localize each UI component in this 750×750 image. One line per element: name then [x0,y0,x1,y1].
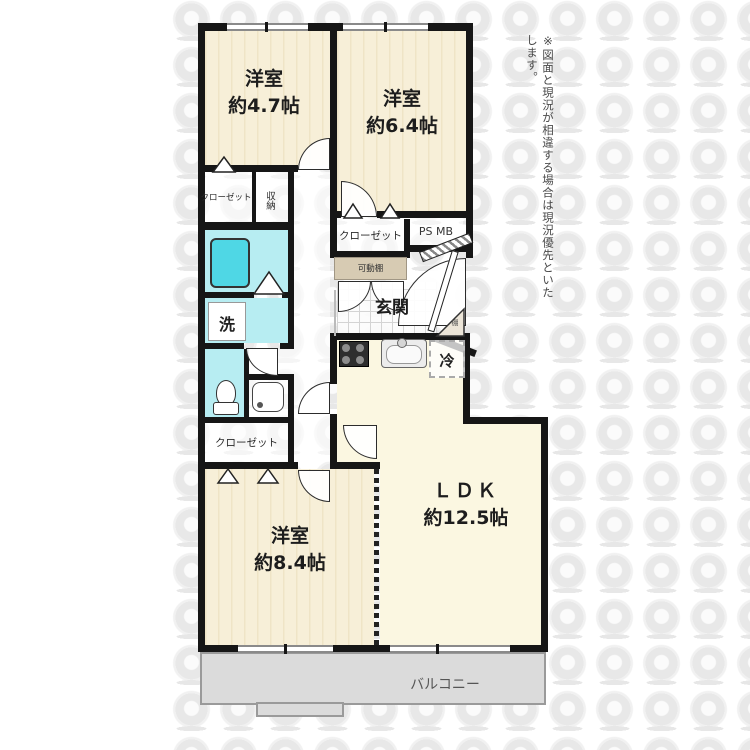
ldk-name: ＬＤＫ [385,478,547,505]
washbasin-drain-icon [257,402,263,408]
balcony-label: バルコニー [390,674,500,694]
wall-segment [330,340,337,384]
window-tick [284,644,287,654]
wall-segment [466,23,473,258]
bathtub-icon [210,238,250,288]
ldk-size: 約12.5帖 [385,505,547,532]
entrance-label: 玄関 [352,293,432,318]
wall-segment [330,462,380,469]
closet-center-label: クローゼット [337,228,404,243]
wall-segment [330,23,337,172]
stove-burner-icon [342,356,350,364]
bedroom-84-size: 約8.4帖 [205,550,375,577]
wall-segment [288,172,294,349]
wall-segment [510,645,548,652]
bath-door-mark [254,272,284,294]
entrance-shelf-label: 棚 [448,318,462,328]
bedroom-84-label: 洋室 約8.4帖 [205,523,375,576]
wall-segment [288,380,294,469]
wall-segment [198,645,238,652]
wall-segment [280,343,294,349]
bedroom-64-name: 洋室 [337,86,467,113]
entrance-step-line [334,290,336,336]
ldk-label: ＬＤＫ 約12.5帖 [385,478,547,531]
stove-burner-icon [356,356,364,364]
stove-burner-icon [356,344,364,352]
wall-segment [198,292,254,298]
wall-segment [198,222,294,230]
wall-segment [198,343,244,349]
wall-segment [330,414,337,469]
refrigerator-label: 冷 [429,350,465,371]
bedroom-64-label: 洋室 約6.4帖 [337,86,467,139]
closet-lower-label: クローゼット [205,435,288,450]
ps-mb-label: PS MB [408,225,464,238]
wall-segment [330,172,337,258]
bedroom-64-size: 約6.4帖 [337,113,467,140]
movable-shelf-label: 可動棚 [334,262,407,274]
washbasin-icon [252,382,284,412]
bedroom-47-name: 洋室 [198,66,330,93]
wall-segment [198,417,294,423]
window-tick [265,22,268,32]
disclaimer-text: ※図面と現況が相違する場合は現況優先といたします。 [524,34,556,304]
closet-door-mark [258,469,278,483]
closet-door-mark [381,204,399,218]
corridor-floor [294,172,330,462]
floor-plan: バルコニー [0,0,750,750]
window [390,645,510,653]
washing-machine-label: 洗 [208,311,246,335]
closet-upper-left-label: クローゼット [198,191,254,203]
bedroom-84-name: 洋室 [205,523,375,550]
window-tick [384,22,387,32]
toilet-tank-icon [213,402,239,415]
wall-segment [463,417,548,424]
closet-door-mark [213,157,235,172]
closet-door-mark [218,469,238,483]
wall-segment [333,645,390,652]
wall-segment [198,462,298,469]
ldk-floor [380,424,541,645]
balcony-step [256,702,344,717]
bedroom-47-label: 洋室 約4.7帖 [198,66,330,119]
wall-segment [541,417,548,652]
storage-label: 収納 [262,180,276,220]
stove-burner-icon [342,344,350,352]
kitchen-sink-basin-icon [386,345,422,364]
window-tick [436,644,439,654]
closet-door-mark [344,204,362,218]
bedroom-47-size: 約4.7帖 [198,93,330,120]
faucet-icon [397,338,407,348]
